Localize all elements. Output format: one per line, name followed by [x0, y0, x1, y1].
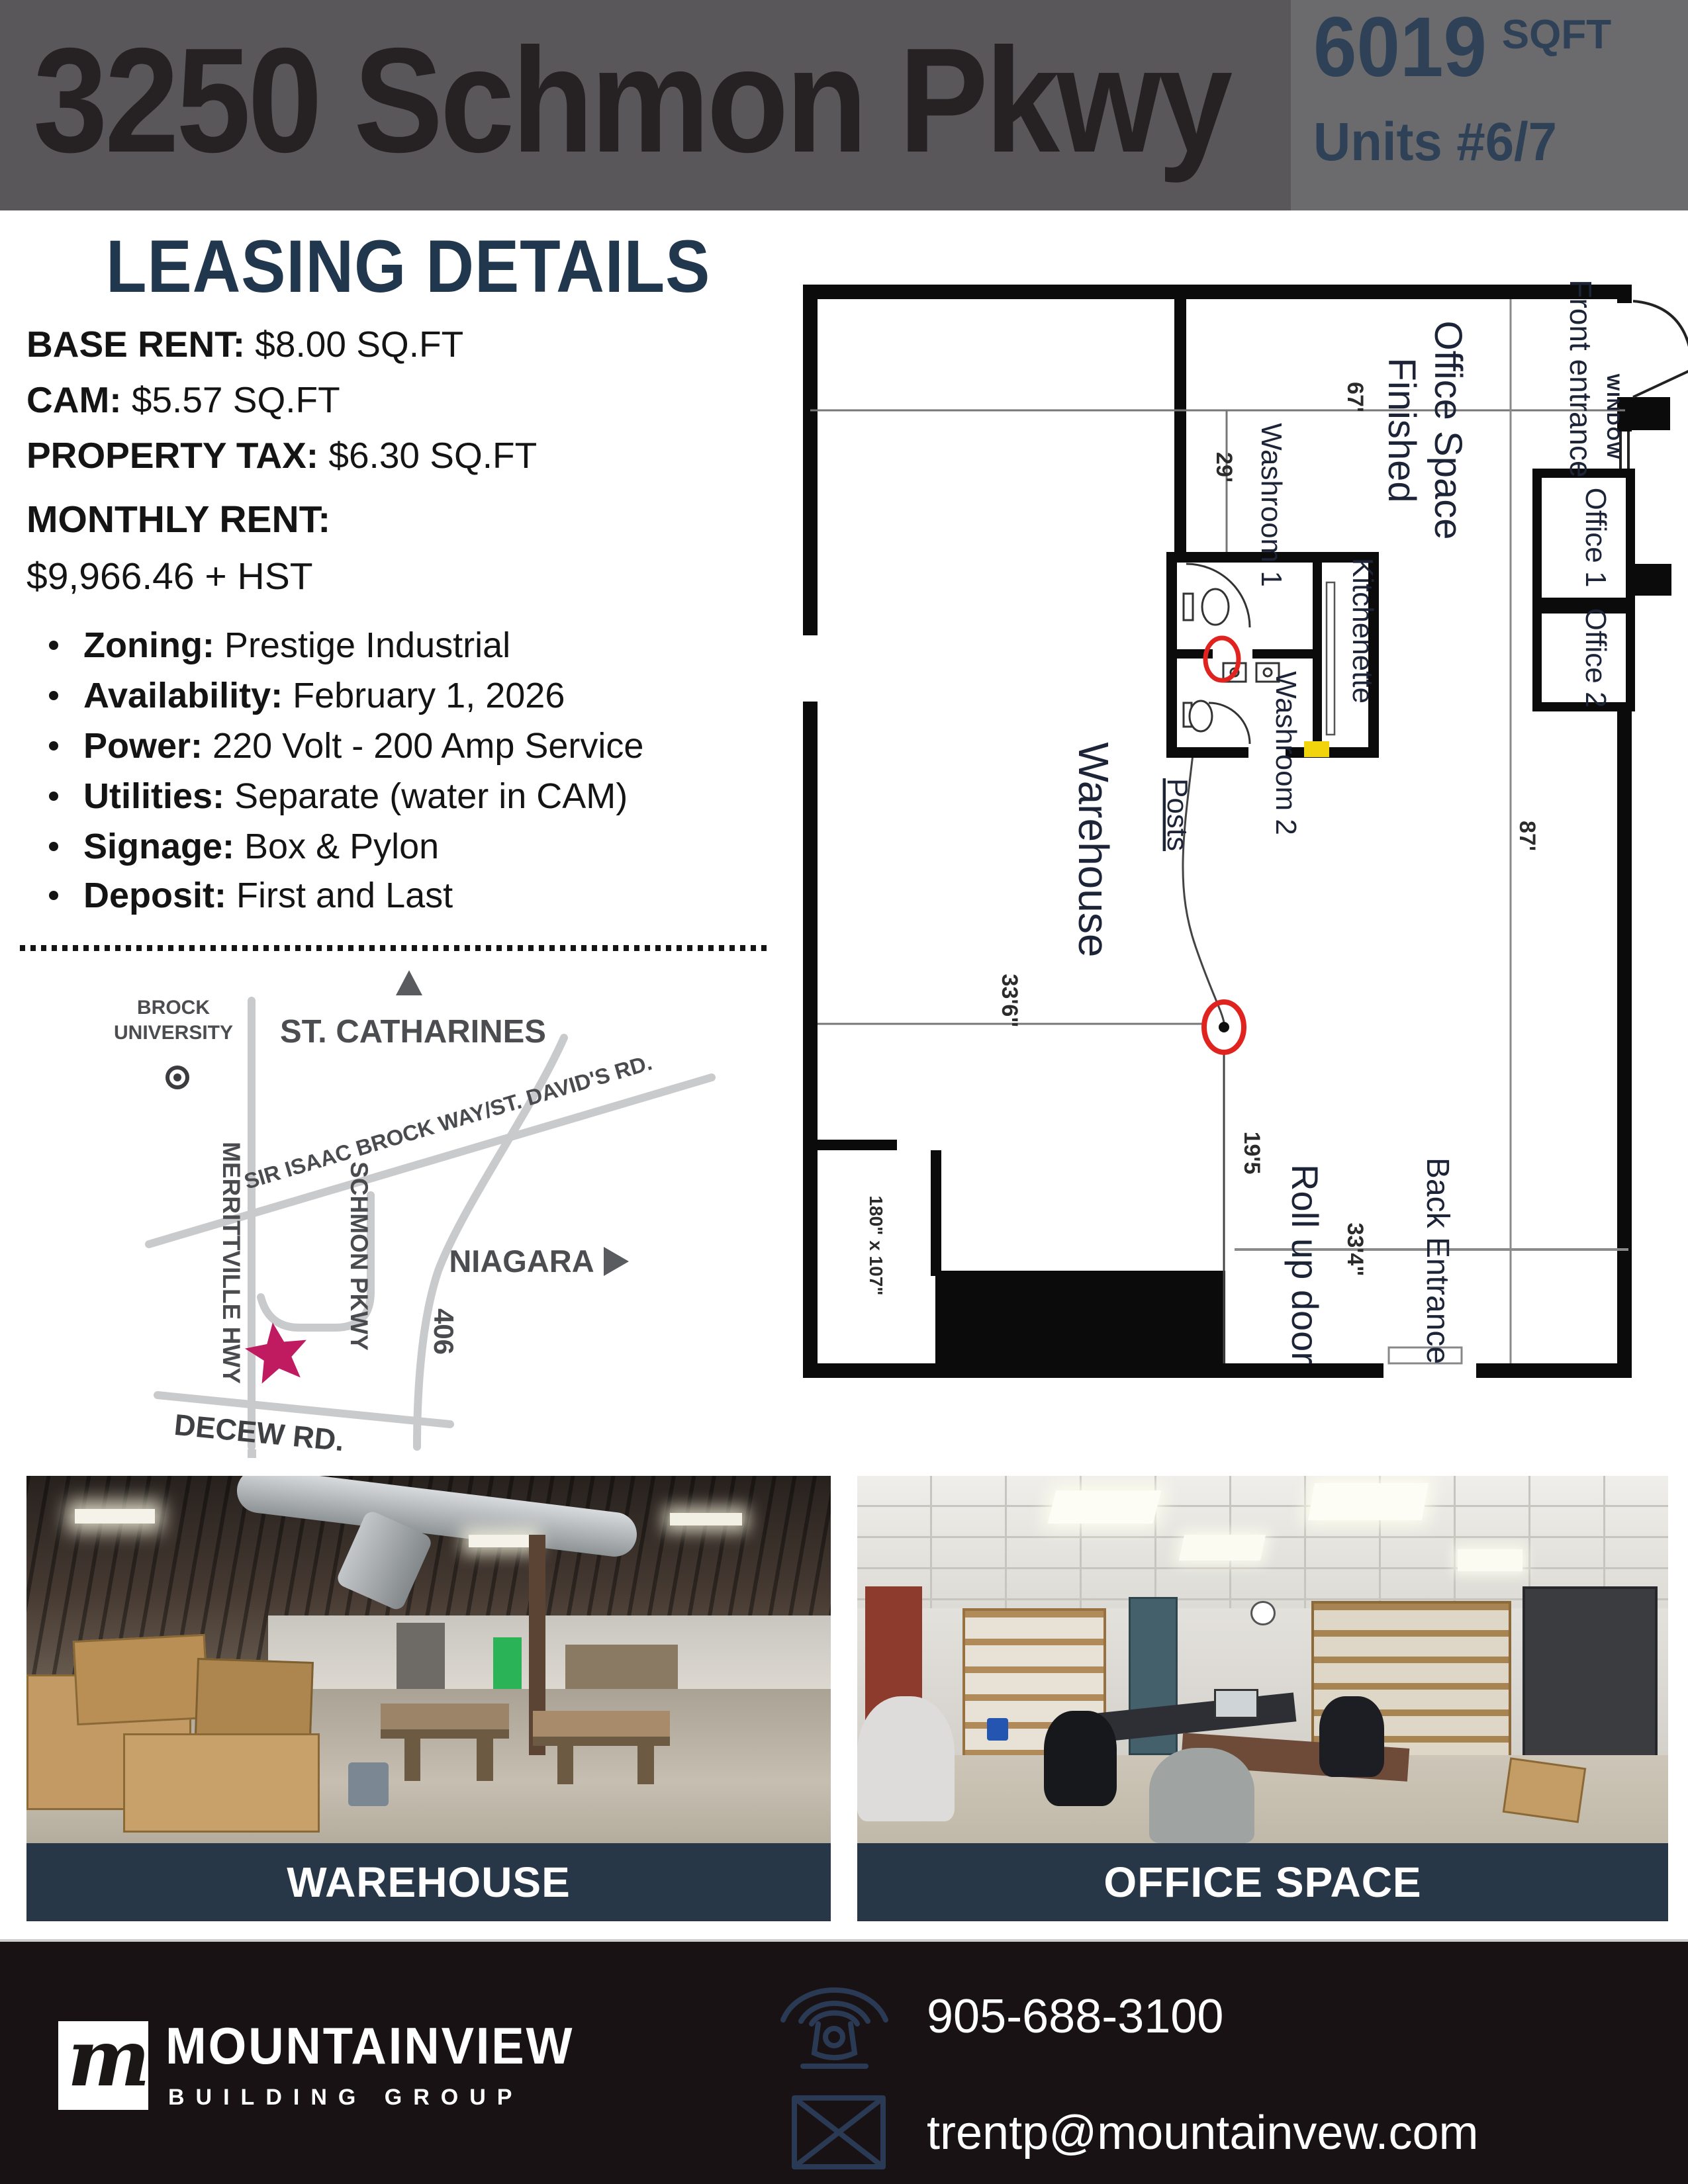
leasing-flyer-page: 3250 Schmon Pkwy 6019 SQFT Units #6/7 LE… — [0, 0, 1688, 2184]
dim-180x107: 180" x 107" — [866, 1195, 886, 1295]
label-office1: Office 1 — [1579, 488, 1612, 588]
toilet-tank — [1184, 594, 1193, 620]
label-washroom1: Washroom 1 — [1255, 423, 1288, 587]
phone-number: 905-688-3100 — [927, 1989, 1223, 2044]
niagara-arrow-icon — [604, 1247, 629, 1276]
map-schmon-label: SCHMON PKWY — [346, 1161, 373, 1351]
dim-67: 67' — [1342, 382, 1368, 412]
footer-bar: m MOUNTAINVIEW BUILDING GROUP 905-688-31… — [0, 1942, 1688, 2184]
photo-shape — [268, 1615, 831, 1696]
warehouse-caption: WAREHOUSE — [287, 1858, 571, 1907]
photo-shape — [1179, 1535, 1266, 1561]
office-space-photo — [857, 1476, 1668, 1843]
photo-shape — [1308, 1483, 1428, 1520]
phone-icon — [773, 1968, 896, 2074]
map-diagonal-road-label: SIR ISAAC BROCK WAY/ST. DAVID'S RD. — [241, 1050, 655, 1193]
dim-33-4: 33'4" — [1342, 1223, 1368, 1277]
dim-87: 87' — [1515, 821, 1540, 851]
photo-shape — [469, 1535, 533, 1547]
photo-shape — [123, 1733, 320, 1833]
toilet-icon — [1190, 701, 1212, 731]
photo-shape — [75, 1509, 156, 1524]
photo-shape — [637, 1737, 653, 1784]
label-washroom2: Washroom 2 — [1270, 671, 1302, 835]
photo-shape — [1458, 1549, 1523, 1571]
dim-33-6: 33'6" — [997, 974, 1022, 1028]
mountainview-logo: m — [58, 2021, 148, 2110]
map-university-line1: BROCK — [137, 997, 210, 1019]
label-kitchenette: Kitchenette — [1346, 558, 1379, 704]
plan-walls — [803, 285, 1671, 1378]
label-finished: Finished — [1380, 357, 1423, 502]
photo-shape — [1214, 1689, 1258, 1719]
map-406-label: 406 — [428, 1308, 459, 1355]
north-arrow-icon — [396, 970, 422, 995]
map-merrittville-label: MERRITTVILLE HWY — [218, 1142, 245, 1384]
label-window: WINDOW — [1603, 374, 1623, 460]
photo-shape — [1319, 1696, 1384, 1777]
photo-shape — [404, 1729, 420, 1781]
photo-shape — [557, 1737, 573, 1784]
photo-shape — [493, 1637, 522, 1696]
map-city-label: ST. CATHARINES — [280, 1014, 546, 1050]
front-entrance-door-leaf — [1633, 369, 1688, 397]
toilet-icon — [1202, 589, 1229, 625]
photo-shape — [565, 1645, 678, 1689]
front-entrance-arc — [1633, 301, 1688, 369]
location-map: ST. CATHARINES BROCK UNIVERSITY SIR ISAA… — [114, 970, 712, 1458]
photo-shape — [73, 1634, 210, 1725]
map-niagara-label: NIAGARA — [449, 1244, 594, 1279]
warehouse-caption-bar: WAREHOUSE — [26, 1843, 831, 1921]
photo-shape — [397, 1623, 445, 1689]
email-address: trentp@mountainvew.com — [927, 2106, 1478, 2160]
photo-shape — [1149, 1748, 1254, 1843]
photo-shape — [987, 1718, 1008, 1740]
dim-19-5: 19'5 — [1239, 1132, 1264, 1175]
photo-shape — [1503, 1757, 1587, 1823]
label-office-space: Office Space — [1427, 320, 1470, 539]
envelope-icon — [789, 2093, 888, 2172]
road-stub — [248, 1449, 256, 1458]
dim-29: 29' — [1211, 452, 1237, 482]
label-posts: Posts — [1161, 778, 1194, 851]
label-warehouse: Warehouse — [1070, 743, 1117, 958]
photo-shape — [477, 1729, 492, 1781]
yellow-highlight — [1304, 741, 1329, 757]
brand-subtitle: BUILDING GROUP — [168, 2085, 523, 2111]
post-dot — [1219, 1022, 1229, 1032]
photo-shape — [670, 1513, 742, 1526]
office-caption-bar: OFFICE SPACE — [857, 1843, 1668, 1921]
label-office2: Office 2 — [1579, 608, 1612, 708]
university-marker-dot — [173, 1073, 181, 1081]
photo-shape — [1523, 1586, 1658, 1776]
label-front-entrance: Front entrance — [1564, 279, 1598, 477]
label-back-entrance: Back Entrance — [1420, 1158, 1455, 1364]
office-caption: OFFICE SPACE — [1103, 1858, 1421, 1907]
photo-shape — [857, 1696, 955, 1821]
map-university-line2: UNIVERSITY — [114, 1022, 233, 1044]
photo-shape — [348, 1762, 389, 1807]
photo-shape — [1048, 1490, 1162, 1524]
brand-name: MOUNTAINVIEW — [165, 2016, 574, 2076]
photo-shape — [1250, 1601, 1276, 1625]
label-roll-up-door: Roll up door — [1284, 1164, 1326, 1364]
photo-shape — [1044, 1711, 1117, 1806]
warehouse-photo — [26, 1476, 831, 1843]
floor-plan: Finished Office Space Front entrance WIN… — [803, 279, 1688, 1378]
logo-m-glyph: m — [68, 2012, 150, 2104]
